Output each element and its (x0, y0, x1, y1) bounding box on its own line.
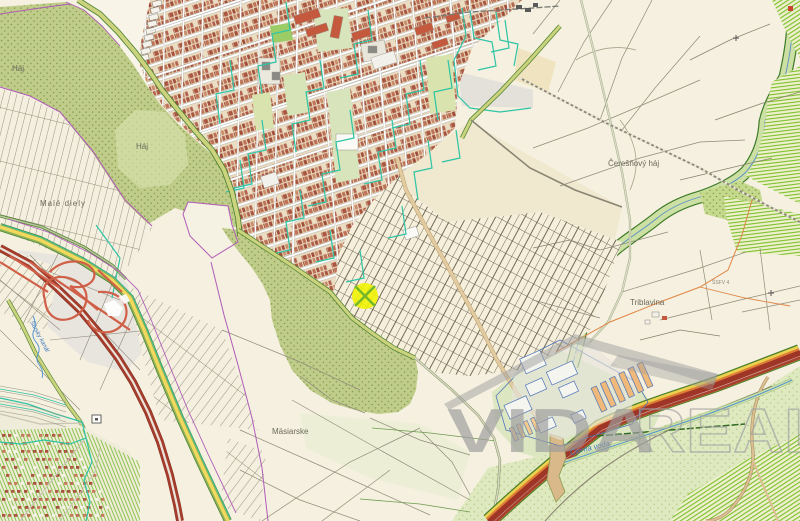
svg-text:Malé diely: Malé diely (40, 199, 86, 208)
svg-text:Háj: Háj (136, 142, 148, 151)
svg-text:ŠSFV 4: ŠSFV 4 (712, 279, 729, 286)
svg-text:VIDA: VIDA (447, 396, 656, 465)
svg-text:Triblavina: Triblavina (630, 298, 665, 307)
svg-text:Háj: Háj (12, 64, 24, 73)
svg-text:Čerešňový háj: Čerešňový háj (608, 159, 659, 168)
svg-text:REAL: REAL (635, 397, 800, 466)
svg-text:Mäsiarske: Mäsiarske (272, 427, 309, 436)
